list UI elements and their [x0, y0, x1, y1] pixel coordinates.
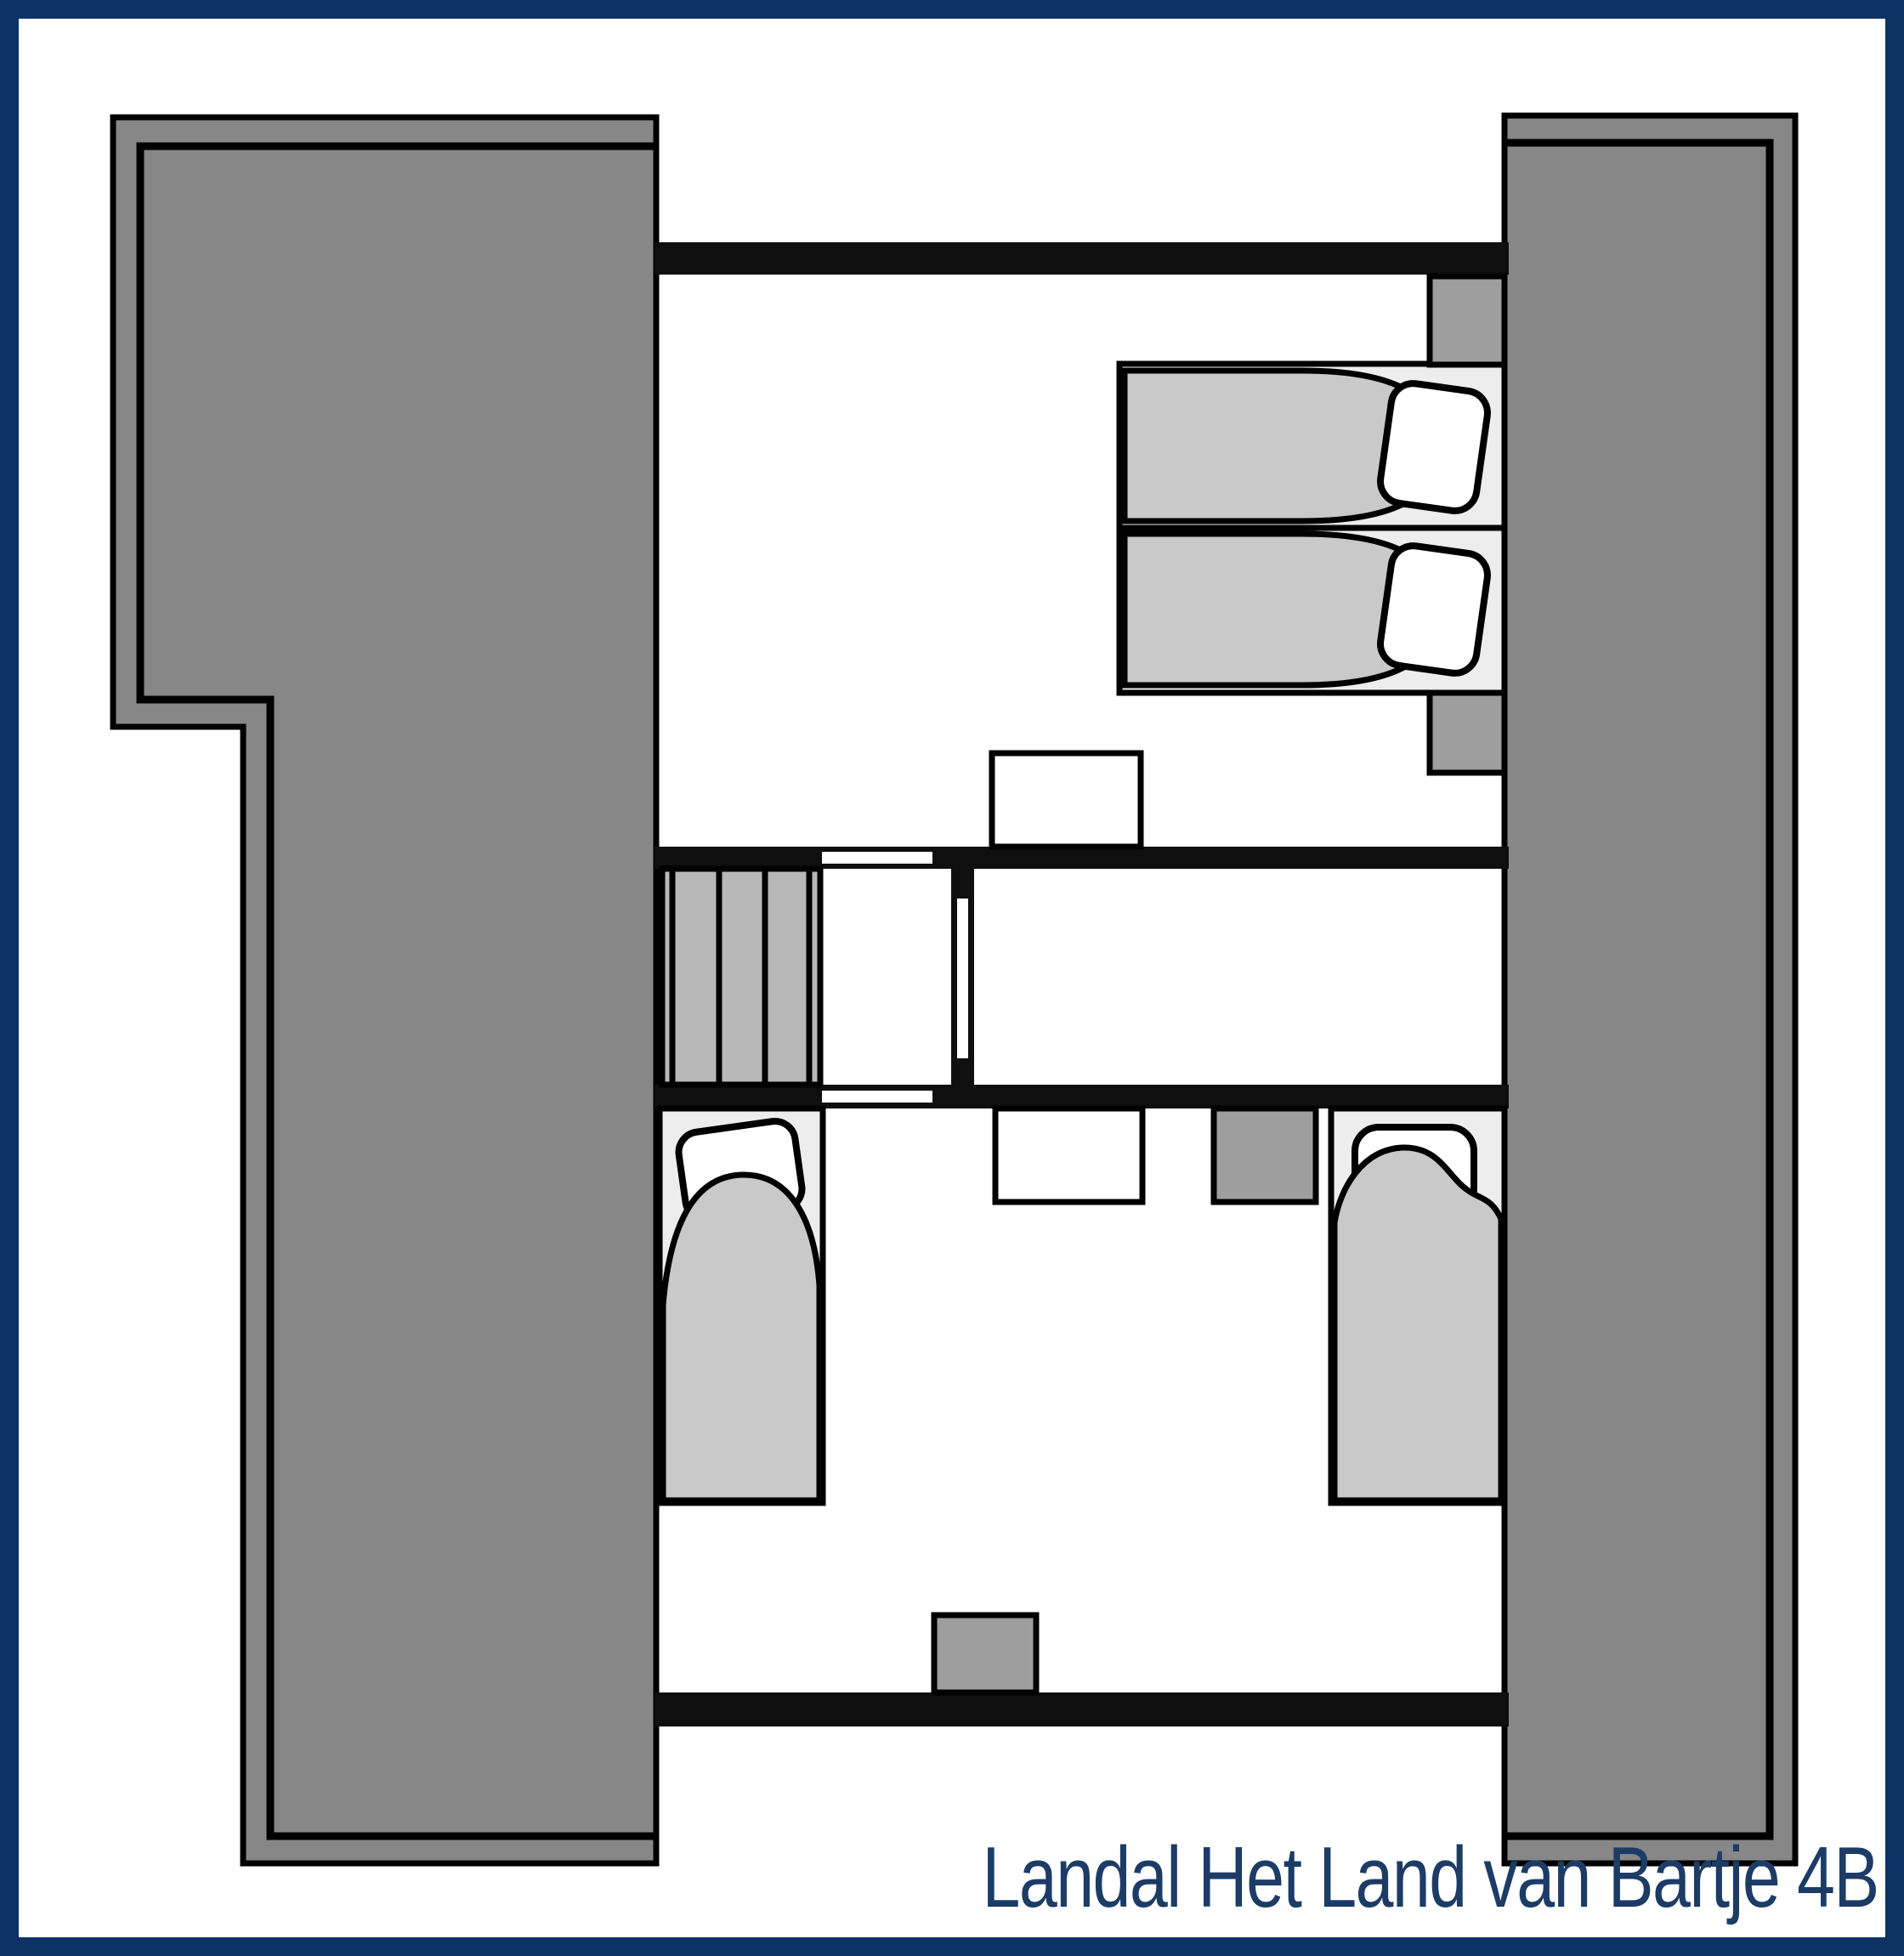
floor-plan-drawing — [0, 0, 1904, 1956]
wall-bottom — [654, 1692, 1509, 1726]
right-roof-outline — [1504, 116, 1795, 1863]
right-roof-slope — [1504, 116, 1795, 1863]
pillow-upper — [1378, 381, 1491, 513]
pillow-lower — [1378, 543, 1491, 676]
staircase — [662, 869, 820, 1085]
left-roof-outline — [113, 117, 656, 1863]
wall-middle-lower — [654, 1085, 1509, 1108]
wall-top — [654, 242, 1509, 275]
floor-plan-page: Landal Het Land van Bartje 4B — [0, 0, 1904, 1956]
nightstand-bottom — [1430, 693, 1504, 773]
dresser-top-bedroom — [992, 753, 1141, 847]
cabinet-on-bottom-wall — [934, 1615, 1036, 1692]
cabinet-bottom-bedroom — [1214, 1108, 1316, 1202]
door-opening-middle-room — [957, 899, 968, 1058]
door-opening-top-bedroom — [822, 852, 932, 864]
nightstand-top — [1430, 276, 1504, 365]
single-bed-left-duvet — [663, 1175, 819, 1500]
single-bed-left — [660, 1108, 823, 1503]
dresser-bottom-bedroom — [995, 1108, 1142, 1202]
wall-middle-upper — [654, 847, 1509, 869]
single-bed-right — [1331, 1108, 1504, 1503]
door-opening-bottom-bedroom — [822, 1091, 932, 1103]
double-bed — [1119, 364, 1504, 693]
stair-treads — [662, 869, 820, 1085]
plan-title: Landal Het Land van Bartje 4B — [983, 1829, 1878, 1927]
single-bed-right-duvet — [1334, 1148, 1501, 1500]
left-roof-slope — [113, 117, 656, 1863]
